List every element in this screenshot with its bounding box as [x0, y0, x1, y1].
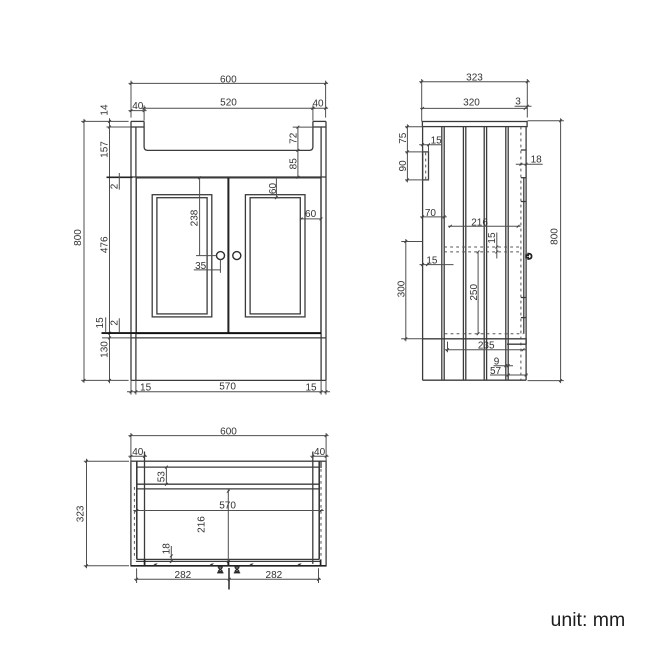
- svg-text:18: 18: [531, 155, 543, 166]
- svg-text:75: 75: [398, 132, 409, 144]
- svg-text:40: 40: [132, 447, 144, 458]
- svg-text:90: 90: [398, 160, 409, 172]
- svg-text:57: 57: [490, 366, 502, 377]
- svg-text:60: 60: [268, 183, 279, 195]
- svg-text:570: 570: [219, 381, 236, 392]
- svg-text:15: 15: [140, 382, 152, 393]
- svg-text:35: 35: [195, 261, 207, 272]
- svg-text:2: 2: [109, 183, 120, 189]
- svg-text:238: 238: [190, 209, 201, 226]
- svg-text:320: 320: [463, 97, 480, 108]
- svg-text:130: 130: [100, 341, 111, 358]
- svg-text:282: 282: [175, 570, 192, 581]
- svg-text:800: 800: [73, 229, 84, 246]
- svg-text:85: 85: [289, 158, 300, 170]
- svg-text:235: 235: [478, 340, 495, 351]
- svg-text:15: 15: [431, 135, 443, 146]
- svg-text:unit: mm: unit: mm: [551, 609, 626, 631]
- svg-text:300: 300: [396, 280, 407, 297]
- svg-text:323: 323: [75, 505, 86, 522]
- svg-text:520: 520: [220, 98, 237, 109]
- svg-text:18: 18: [162, 543, 173, 555]
- svg-text:40: 40: [132, 101, 144, 112]
- svg-text:282: 282: [266, 570, 283, 581]
- svg-text:14: 14: [100, 104, 111, 116]
- svg-text:60: 60: [305, 209, 317, 220]
- svg-text:15: 15: [487, 232, 498, 244]
- svg-text:323: 323: [466, 73, 483, 84]
- svg-text:72: 72: [289, 132, 300, 144]
- svg-text:600: 600: [220, 74, 237, 85]
- svg-text:40: 40: [314, 447, 326, 458]
- svg-text:800: 800: [550, 228, 561, 245]
- svg-text:15: 15: [95, 317, 106, 329]
- svg-text:53: 53: [157, 471, 168, 483]
- svg-text:250: 250: [469, 284, 480, 301]
- svg-text:216: 216: [196, 516, 207, 533]
- svg-text:15: 15: [305, 382, 317, 393]
- svg-text:15: 15: [426, 256, 438, 267]
- svg-text:216: 216: [471, 217, 488, 228]
- svg-text:476: 476: [100, 236, 111, 253]
- svg-text:600: 600: [220, 427, 237, 438]
- svg-text:70: 70: [425, 208, 437, 219]
- svg-text:3: 3: [515, 96, 521, 107]
- svg-text:157: 157: [100, 141, 111, 158]
- svg-text:40: 40: [312, 99, 324, 110]
